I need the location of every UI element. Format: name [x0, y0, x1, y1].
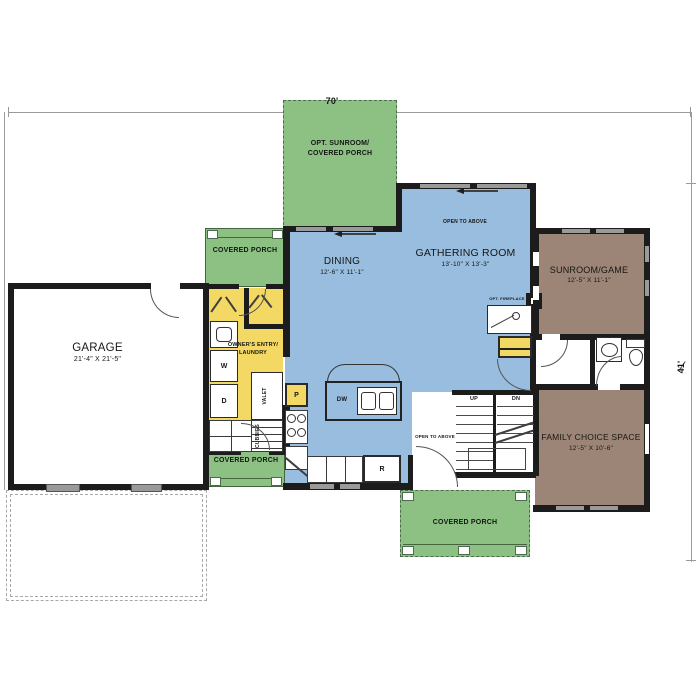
opt-fireplace-box: [487, 305, 532, 334]
toilet-tank: [626, 339, 645, 348]
wall-opening: [533, 252, 539, 266]
window: [556, 506, 584, 510]
open-to-above-gathering: OPEN TO ABOVE: [430, 220, 500, 228]
window: [296, 227, 326, 231]
porch-post: [515, 492, 527, 501]
opt-sunroom-label-1: OPT. SUNROOM/: [285, 140, 395, 150]
bar-cabinet: [498, 336, 532, 358]
opt-sunroom-label-2: COVERED PORCH: [285, 150, 395, 160]
porch-post: [207, 230, 218, 239]
stair-bottom-wall: [452, 472, 536, 478]
burner: [287, 414, 296, 423]
family-top-wall: [533, 384, 650, 390]
owners-entry-label-2: LAUNDRY: [222, 350, 284, 358]
range-label: R: [379, 466, 384, 473]
depth-dimension: 41': [676, 349, 688, 385]
window: [645, 280, 649, 296]
door-swing: [150, 289, 179, 318]
opt-sunroom-area: [283, 100, 397, 230]
garage-bottom-wall: [8, 484, 207, 490]
gathering-name: GATHERING ROOM: [398, 247, 533, 260]
porch-post: [402, 546, 414, 555]
window: [340, 484, 360, 489]
sunroom-size: 12'-5" x 11'-1": [535, 277, 643, 286]
garage-left-wall: [8, 283, 14, 490]
burner: [297, 428, 306, 437]
slide-arrow: [464, 190, 498, 192]
tick-mark: [8, 107, 9, 117]
slide-arrow: [342, 233, 376, 235]
sunroom-name: SUNROOM/GAME: [535, 265, 643, 276]
dining-size: 12'-6" x 11'-1": [297, 269, 387, 278]
hall-divider-wall: [408, 455, 413, 485]
dishwasher-label: DW: [328, 397, 356, 406]
window: [596, 229, 624, 233]
pantry-label: P: [294, 392, 299, 399]
lower-cabinets: [307, 456, 363, 483]
dimension-line-right: [691, 112, 692, 562]
owners-entry-label-1: OWNER'S ENTRY/: [222, 342, 284, 350]
porch-post: [458, 546, 470, 555]
covered-porch-upper-label: COVERED PORCH: [205, 247, 285, 257]
stairs-dn-label: DN: [499, 396, 533, 404]
covered-porch-lower-label: COVERED PORCH: [207, 457, 285, 467]
window: [590, 506, 618, 510]
window: [645, 246, 649, 262]
gathering-size: 13'-10" x 13'-3": [398, 261, 533, 270]
gathering-left-wall: [396, 183, 402, 232]
window: [477, 184, 527, 188]
range: R: [363, 455, 401, 483]
bath-partition-wall: [590, 340, 595, 384]
stairs-up-label: UP: [456, 396, 492, 404]
opt-fireplace-label: OPT. FIREPLACE: [482, 297, 532, 303]
tick-mark: [686, 183, 696, 184]
dining-name: DINING: [297, 256, 387, 268]
washer-label: W: [221, 363, 228, 370]
covered-porch-lower-area: [207, 450, 285, 487]
door-swing: [541, 340, 568, 367]
width-dimension: 70': [306, 96, 358, 109]
burner: [297, 414, 306, 423]
porch-post: [272, 230, 283, 239]
floor-plan: W D VALET CUBBIES P R DW: [0, 0, 700, 700]
covered-porch-upper-area: [205, 228, 285, 287]
garage-door: [46, 484, 80, 492]
garage-top-wall: [8, 283, 151, 289]
slide-arrow-head: [334, 231, 342, 237]
burner: [287, 428, 296, 437]
pantry: P: [285, 383, 308, 407]
closet-partition: [244, 324, 285, 329]
open-to-above-stair: OPEN TO ABOVE: [413, 434, 457, 441]
driveway-outline: [6, 490, 207, 601]
island-arch: [327, 364, 400, 382]
half-wall-label: HALF WALL W/ WOOD CAP: [534, 395, 542, 465]
laundry-top-wall: [207, 284, 239, 289]
family-size: 12'-5" x 10'-6": [535, 445, 647, 454]
door-swing: [416, 446, 458, 487]
tick-mark: [686, 560, 696, 561]
kitchen-sink: [357, 387, 397, 415]
porch-post: [515, 546, 527, 555]
tick-mark: [690, 107, 691, 117]
west-wall: [283, 226, 290, 357]
covered-porch-rear-label: COVERED PORCH: [400, 519, 530, 529]
garage-size: 21'-4" x 21'-5": [40, 356, 155, 365]
stair-landing: [468, 448, 526, 470]
porch-post: [271, 477, 282, 486]
garage-door: [131, 484, 162, 492]
wall-opening: [533, 286, 539, 300]
porch-post: [210, 477, 221, 486]
valet-label: VALET: [263, 372, 271, 420]
toilet-bowl: [629, 349, 643, 366]
porch-post: [402, 492, 414, 501]
family-name: FAMILY CHOICE SPACE: [535, 433, 647, 444]
sunroom-top-wall: [533, 228, 650, 234]
dryer-label: D: [221, 398, 226, 405]
garage-name: GARAGE: [40, 342, 155, 355]
property-line-left: [4, 112, 5, 490]
window: [562, 229, 590, 233]
slide-arrow-head: [456, 188, 464, 194]
dryer: D: [210, 384, 238, 418]
window: [310, 484, 334, 489]
